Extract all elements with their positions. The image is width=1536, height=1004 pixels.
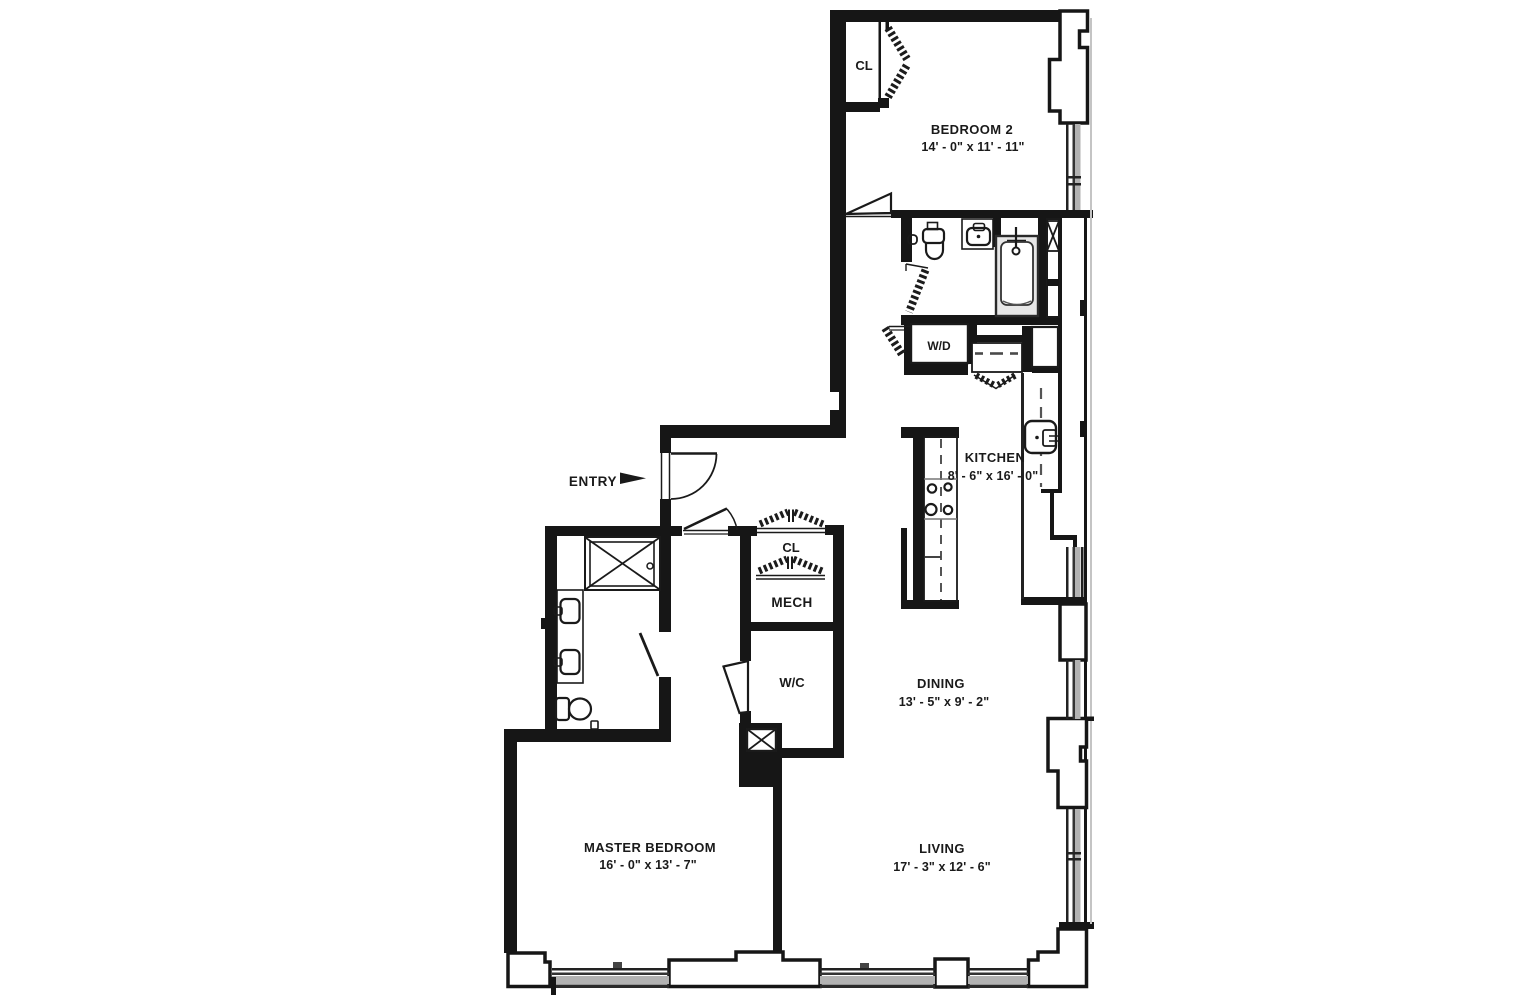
svg-text:16' - 0" x 13' - 7": 16' - 0" x 13' - 7" (599, 858, 697, 872)
svg-text:MECH: MECH (771, 595, 812, 610)
svg-text:13' - 5" x 9' - 2": 13' - 5" x 9' - 2" (899, 695, 989, 709)
svg-text:17' - 3" x 12' - 6": 17' - 3" x 12' - 6" (893, 860, 991, 874)
svg-text:KITCHEN: KITCHEN (965, 450, 1026, 465)
svg-text:ENTRY: ENTRY (569, 474, 617, 489)
svg-text:DINING: DINING (917, 676, 965, 691)
svg-text:CL: CL (855, 58, 872, 73)
svg-text:LIVING: LIVING (919, 841, 965, 856)
svg-text:BEDROOM 2: BEDROOM 2 (931, 122, 1013, 137)
svg-text:W/D: W/D (927, 339, 951, 353)
svg-text:8' - 6" x 16' - 0": 8' - 6" x 16' - 0" (948, 469, 1038, 483)
svg-text:W/C: W/C (779, 675, 805, 690)
svg-text:14' - 0" x 11' - 11": 14' - 0" x 11' - 11" (921, 140, 1024, 154)
svg-text:CL: CL (782, 540, 799, 555)
svg-text:MASTER BEDROOM: MASTER BEDROOM (584, 840, 716, 855)
